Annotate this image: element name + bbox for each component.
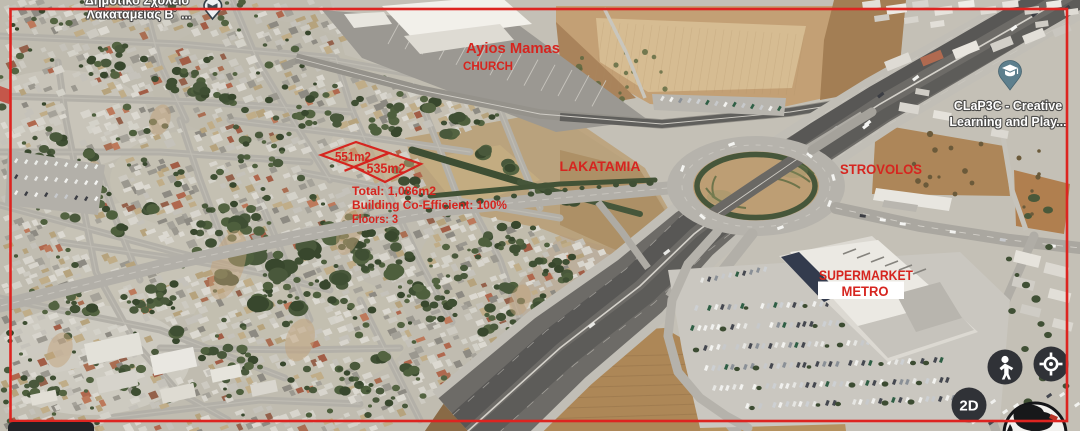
svg-text:CLaP3C - Creative: CLaP3C - Creative bbox=[954, 99, 1062, 113]
svg-text:Floors: 3: Floors: 3 bbox=[352, 212, 398, 226]
svg-text:METRO: METRO bbox=[842, 284, 889, 299]
svg-text:LAKATAMIA: LAKATAMIA bbox=[560, 159, 641, 174]
svg-text:STROVOLOS: STROVOLOS bbox=[840, 162, 922, 177]
svg-text:Total: 1,086m2: Total: 1,086m2 bbox=[352, 184, 436, 198]
svg-text:2D: 2D bbox=[959, 398, 978, 415]
svg-text:Learning and Play...: Learning and Play... bbox=[949, 115, 1066, 129]
svg-text:Δημοτικό Σχολείο: Δημοτικό Σχολείο bbox=[85, 0, 190, 8]
svg-text:SUPERMARKET: SUPERMARKET bbox=[819, 267, 913, 283]
svg-text:Building Co-Efficient: 100%: Building Co-Efficient: 100% bbox=[352, 198, 507, 212]
svg-text:Ayios Mamas: Ayios Mamas bbox=[466, 41, 560, 57]
svg-text:535m2: 535m2 bbox=[367, 161, 406, 176]
svg-text:CHURCH: CHURCH bbox=[463, 61, 513, 73]
